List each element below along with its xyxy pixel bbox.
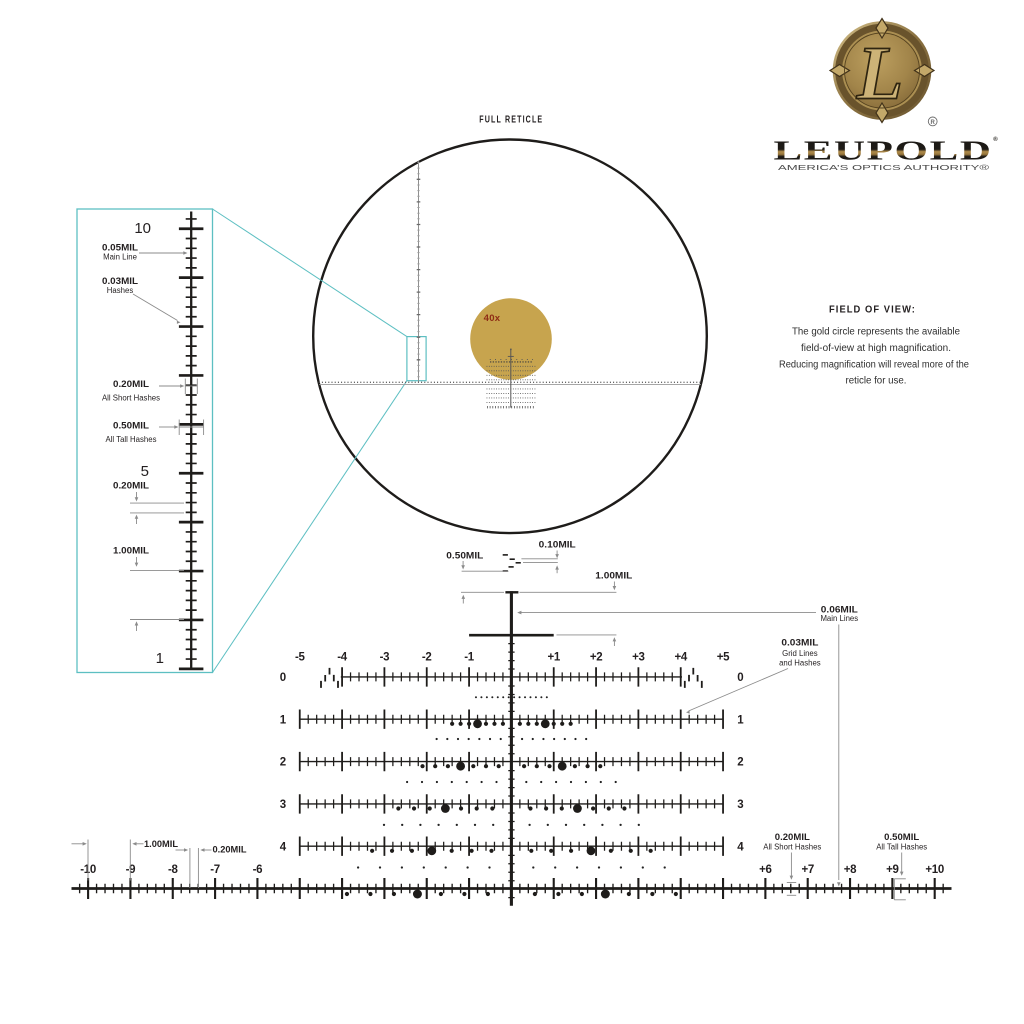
svg-text:0.20MIL: 0.20MIL (113, 481, 150, 491)
svg-text:2: 2 (737, 757, 743, 769)
svg-text:-6: -6 (253, 864, 263, 876)
svg-text:+4: +4 (674, 652, 687, 664)
svg-text:LEUPOLD: LEUPOLD (774, 136, 993, 166)
svg-text:L: L (856, 32, 903, 116)
svg-text:Main Line: Main Line (103, 253, 137, 262)
svg-text:3: 3 (280, 799, 286, 811)
svg-text:and Hashes: and Hashes (779, 658, 821, 667)
svg-text:The gold circle represents the: The gold circle represents the available (792, 327, 960, 338)
svg-text:0.10MIL: 0.10MIL (539, 540, 577, 550)
svg-text:0.20MIL: 0.20MIL (113, 379, 150, 389)
svg-text:1.00MIL: 1.00MIL (144, 839, 179, 849)
svg-text:0.50MIL: 0.50MIL (113, 421, 150, 431)
svg-text:1: 1 (280, 714, 287, 726)
svg-text:reticle for use.: reticle for use. (846, 376, 907, 387)
svg-text:AMERICA’S OPTICS AUTHORITY®: AMERICA’S OPTICS AUTHORITY® (778, 163, 990, 172)
svg-text:+3: +3 (632, 652, 645, 664)
svg-text:FULL RETICLE: FULL RETICLE (479, 115, 543, 126)
svg-text:0.03MIL: 0.03MIL (102, 276, 139, 286)
svg-text:10: 10 (134, 220, 151, 237)
svg-text:Hashes: Hashes (107, 286, 134, 295)
svg-text:0.03MIL: 0.03MIL (781, 637, 819, 647)
svg-text:0: 0 (737, 672, 743, 684)
svg-text:3: 3 (737, 799, 743, 811)
svg-text:All Tall Hashes: All Tall Hashes (876, 842, 927, 851)
svg-text:-2: -2 (422, 652, 432, 664)
svg-text:1: 1 (156, 650, 164, 667)
svg-text:0.20MIL: 0.20MIL (775, 832, 811, 842)
svg-text:-8: -8 (168, 864, 179, 876)
svg-text:-7: -7 (210, 864, 220, 876)
svg-text:0.05MIL: 0.05MIL (102, 243, 139, 253)
svg-text:All Short Hashes: All Short Hashes (102, 394, 160, 403)
svg-text:+8: +8 (844, 864, 857, 876)
svg-text:Main Lines: Main Lines (820, 614, 858, 623)
svg-text:All Tall Hashes: All Tall Hashes (106, 435, 157, 444)
svg-text:+2: +2 (590, 652, 603, 664)
svg-text:5: 5 (141, 463, 149, 480)
svg-text:1: 1 (737, 714, 744, 726)
svg-text:®: ® (993, 136, 998, 143)
svg-text:Reducing magnification will re: Reducing magnification will reveal more … (779, 360, 969, 371)
svg-text:Grid Lines: Grid Lines (782, 649, 818, 658)
svg-text:40x: 40x (484, 313, 501, 324)
svg-text:4: 4 (737, 841, 744, 853)
svg-text:+7: +7 (801, 864, 814, 876)
svg-text:All Short Hashes: All Short Hashes (763, 842, 821, 851)
svg-text:0.50MIL: 0.50MIL (446, 550, 484, 560)
svg-text:4: 4 (280, 841, 287, 853)
svg-text:R: R (931, 120, 936, 126)
svg-text:+5: +5 (717, 652, 730, 664)
svg-text:+6: +6 (759, 864, 772, 876)
svg-text:+9: +9 (886, 864, 899, 876)
svg-text:2: 2 (280, 757, 286, 769)
svg-text:0.50MIL: 0.50MIL (884, 832, 920, 842)
svg-text:1.00MIL: 1.00MIL (595, 571, 633, 581)
svg-text:-5: -5 (295, 652, 306, 664)
svg-text:1.00MIL: 1.00MIL (113, 546, 150, 556)
svg-text:-1: -1 (464, 652, 475, 664)
svg-text:0.20MIL: 0.20MIL (213, 844, 248, 854)
svg-text:field-of-view at high magnific: field-of-view at high magnification. (801, 343, 951, 354)
svg-text:0: 0 (280, 672, 286, 684)
svg-text:-4: -4 (337, 652, 348, 664)
svg-text:+10: +10 (925, 864, 944, 876)
svg-text:FIELD OF VIEW:: FIELD OF VIEW: (829, 304, 916, 316)
svg-text:+1: +1 (547, 652, 560, 664)
svg-text:-3: -3 (380, 652, 390, 664)
